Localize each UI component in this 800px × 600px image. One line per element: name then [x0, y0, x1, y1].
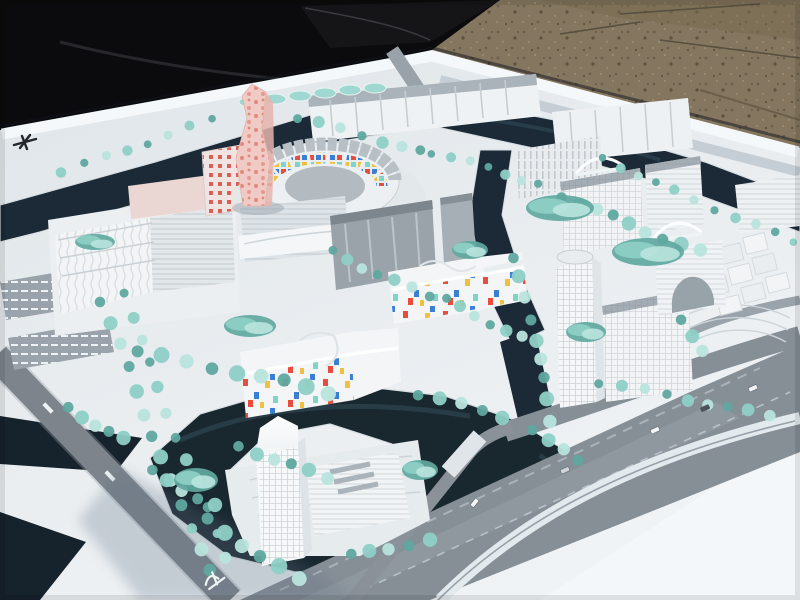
tree	[254, 369, 269, 384]
tree	[723, 402, 733, 412]
tree	[428, 150, 436, 158]
tree	[694, 243, 707, 256]
tree	[75, 411, 89, 425]
tree	[208, 498, 222, 512]
tree	[477, 405, 488, 416]
tree	[652, 178, 660, 186]
tree-cluster	[553, 203, 590, 217]
tree	[495, 411, 509, 425]
tree	[132, 345, 144, 357]
tree	[146, 431, 157, 442]
tree	[433, 391, 447, 405]
tree	[640, 383, 651, 394]
tree	[63, 402, 74, 413]
tree	[682, 395, 694, 407]
tree	[154, 347, 170, 363]
tree	[206, 362, 219, 375]
tree	[120, 289, 129, 298]
tree	[357, 263, 368, 274]
tree	[153, 449, 168, 464]
tree	[102, 151, 111, 160]
tree	[685, 329, 699, 343]
tree	[124, 361, 135, 372]
tree	[696, 345, 708, 357]
tree	[95, 297, 106, 308]
tree	[321, 386, 336, 401]
tree	[313, 116, 325, 128]
tree	[517, 331, 528, 342]
photo-of-architectural-model	[0, 0, 800, 600]
tree	[164, 131, 173, 140]
tree	[235, 539, 249, 553]
tree	[179, 354, 193, 368]
tree-cluster	[582, 329, 604, 340]
tree	[442, 294, 451, 303]
tree	[341, 254, 353, 266]
tree	[406, 281, 417, 292]
tree	[558, 443, 570, 455]
tree	[229, 365, 245, 381]
tree	[376, 136, 388, 148]
tree	[423, 533, 437, 547]
tree	[292, 571, 307, 586]
tree	[116, 431, 130, 445]
tree-cluster	[640, 246, 680, 261]
tree	[710, 206, 718, 214]
tree	[250, 447, 264, 461]
tree	[122, 145, 132, 155]
tree	[771, 228, 780, 237]
tree	[534, 180, 542, 188]
tree	[485, 163, 493, 171]
tree	[639, 226, 652, 239]
tree	[195, 542, 209, 556]
tree	[187, 523, 198, 534]
tree	[144, 140, 152, 148]
tree	[335, 123, 346, 134]
tree	[413, 390, 424, 401]
tree	[594, 379, 603, 388]
tree	[254, 550, 267, 563]
tree	[171, 433, 181, 443]
tree	[538, 372, 549, 383]
tree	[321, 472, 334, 485]
tree	[382, 543, 394, 555]
tree	[634, 172, 643, 181]
tree	[525, 315, 536, 326]
tree	[534, 353, 547, 366]
tree	[500, 169, 510, 179]
tree	[233, 441, 244, 452]
tree	[373, 270, 382, 279]
tree	[669, 185, 679, 195]
tree	[454, 300, 466, 312]
tree	[286, 458, 297, 469]
tree	[147, 465, 158, 476]
tree	[202, 513, 214, 525]
tree	[527, 425, 538, 436]
tree-cluster	[466, 247, 486, 257]
tree	[508, 253, 519, 264]
tree	[302, 463, 316, 477]
tree	[742, 403, 755, 416]
tree	[512, 269, 526, 283]
tree	[622, 216, 636, 230]
right-edge-blocks	[735, 175, 800, 233]
tree	[542, 433, 556, 447]
tree	[80, 159, 88, 167]
tree	[137, 409, 150, 422]
tree	[751, 219, 761, 229]
tree-cluster	[191, 475, 215, 488]
tree	[764, 410, 776, 422]
tree	[271, 558, 287, 574]
tree	[599, 154, 607, 162]
tree	[730, 213, 741, 224]
tree	[185, 121, 195, 131]
tree	[145, 357, 154, 366]
tree	[298, 378, 315, 395]
tree	[415, 145, 425, 155]
tree	[160, 408, 171, 419]
tree	[217, 525, 233, 541]
tree	[128, 312, 140, 324]
tree	[455, 397, 467, 409]
tree	[104, 316, 118, 330]
tree	[446, 152, 456, 162]
tree	[278, 373, 291, 386]
tree	[357, 131, 366, 140]
tree	[346, 549, 357, 560]
tree	[519, 291, 531, 303]
tree	[89, 420, 101, 432]
tree	[160, 473, 174, 487]
tree	[137, 335, 148, 346]
tree	[56, 167, 67, 178]
tree	[517, 176, 526, 185]
tree	[388, 274, 400, 286]
tree	[396, 141, 407, 152]
tree	[469, 311, 480, 322]
tree	[616, 163, 626, 173]
tree	[662, 390, 671, 399]
tree	[219, 552, 231, 564]
tree	[293, 114, 302, 123]
tree	[539, 391, 554, 406]
tree	[329, 246, 338, 255]
tree	[192, 493, 203, 504]
tree-cluster	[416, 467, 436, 478]
tree	[175, 499, 187, 511]
tree	[486, 320, 495, 329]
model-photo	[0, 0, 800, 600]
tree-cluster	[244, 322, 273, 334]
tree	[425, 292, 435, 302]
tree	[689, 195, 698, 204]
tree	[114, 338, 126, 350]
tree	[500, 325, 512, 337]
tree	[130, 384, 144, 398]
tree	[676, 315, 687, 326]
tree	[529, 334, 543, 348]
tree	[403, 540, 414, 551]
tree	[608, 210, 619, 221]
tree	[466, 156, 475, 165]
tree	[180, 453, 193, 466]
tree-cluster	[91, 240, 113, 249]
tree	[268, 453, 280, 465]
tree	[208, 115, 216, 123]
tree	[103, 426, 114, 437]
tree	[151, 381, 163, 393]
tree	[543, 415, 556, 428]
tree	[572, 455, 583, 466]
tree	[362, 544, 376, 558]
tree	[616, 380, 628, 392]
